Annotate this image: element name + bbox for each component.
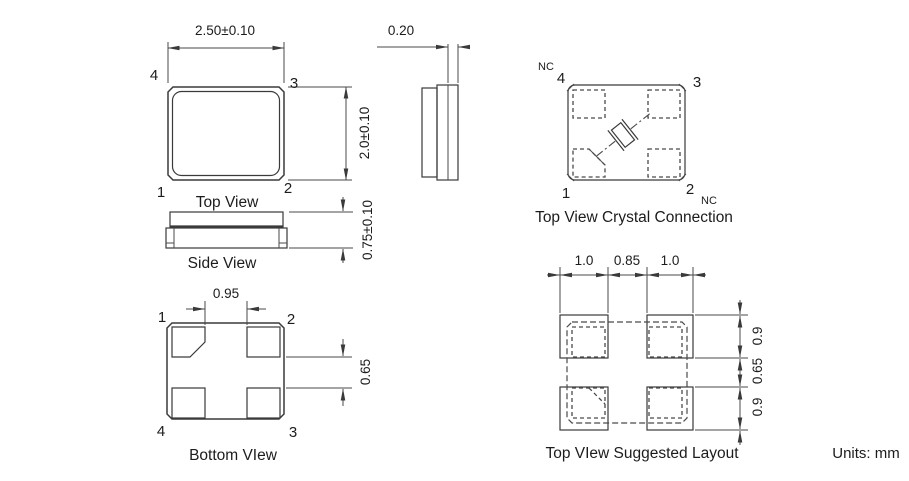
end-view-pad-thickness-dimension: 0.20 xyxy=(377,23,470,83)
connection-pad-4 xyxy=(573,90,605,118)
bottom-view-gap-x-dim-label: 0.95 xyxy=(213,286,239,301)
bottom-view-package-outline xyxy=(167,323,284,419)
end-view-pad-thickness-dim-label: 0.20 xyxy=(388,23,414,38)
bottom-view-pin1-label: 1 xyxy=(158,309,166,326)
layout-dim-pad-width-left-label: 1.0 xyxy=(575,253,594,268)
units-label: Units: mm xyxy=(832,445,900,462)
layout-dim-pad-gap-x-label: 0.85 xyxy=(614,253,640,268)
top-view-width-dim-label: 2.50±0.10 xyxy=(195,23,255,38)
layout-dim-pad-height-bottom-label: 0.9 xyxy=(750,398,765,417)
crystal-connection-group: NC 4 3 1 2 NC Top View Crystal Connectio… xyxy=(535,61,733,226)
bottom-view-pin2-label: 2 xyxy=(287,311,295,328)
bottom-view-caption: Bottom VIew xyxy=(189,447,278,464)
end-view-group: 0.20 xyxy=(377,23,470,180)
end-view-lid xyxy=(422,88,437,177)
side-view-lid xyxy=(170,212,283,227)
top-view-group: 2.50±0.10 2.0±0.10 4 3 1 2 Top View xyxy=(150,23,372,211)
connection-pin3-label: 3 xyxy=(693,74,701,91)
side-view-caption: Side View xyxy=(188,255,257,272)
top-view-height-dimension: 2.0±0.10 xyxy=(288,87,372,180)
bottom-view-gap-y-dimension: 0.65 xyxy=(286,339,373,406)
side-view-base xyxy=(166,228,287,248)
crystal-connection-caption: Top View Crystal Connection xyxy=(535,209,733,226)
connection-corner-marks xyxy=(567,84,686,181)
layout-pad-outline-br xyxy=(649,388,682,418)
crystal-symbol xyxy=(588,104,657,167)
layout-dim-pad-height-top-label: 0.9 xyxy=(750,327,765,346)
top-view-pin2-label: 2 xyxy=(284,180,292,197)
layout-pin1-chamfer xyxy=(589,388,605,404)
top-view-caption: Top View xyxy=(196,194,259,211)
package-dimension-drawing: 2.50±0.10 2.0±0.10 4 3 1 2 Top View 0.75… xyxy=(0,0,909,481)
top-view-package-outline xyxy=(168,87,284,180)
top-view-width-dimension: 2.50±0.10 xyxy=(168,23,284,83)
layout-pad-outline-bl xyxy=(572,388,605,418)
bottom-view-gap-y-dim-label: 0.65 xyxy=(358,359,373,385)
connection-pin1-label: 1 xyxy=(562,185,570,202)
connection-pad-2 xyxy=(648,149,680,177)
bottom-view-pad-2 xyxy=(247,327,280,357)
connection-package-outline xyxy=(568,85,685,180)
layout-pad-outline-tl xyxy=(572,327,605,357)
layout-dim-pad-width-right-label: 1.0 xyxy=(661,253,680,268)
connection-pin4-label: 4 xyxy=(557,70,565,87)
connection-nc-top-label: NC xyxy=(538,61,554,73)
suggested-layout-caption: Top VIew Suggested Layout xyxy=(545,445,739,462)
side-view-height-dimension: 0.75±0.10 xyxy=(289,197,375,263)
layout-package-outline-dashed xyxy=(567,322,687,423)
top-view-pin3-label: 3 xyxy=(290,75,298,92)
top-view-lid-outline xyxy=(173,92,280,176)
top-view-pin1-label: 1 xyxy=(157,184,165,201)
connection-pin2-label: 2 xyxy=(686,181,694,198)
top-view-pin4-label: 4 xyxy=(150,67,158,84)
datasheet-drawing-sheet: 2.50±0.10 2.0±0.10 4 3 1 2 Top View 0.75… xyxy=(0,0,909,481)
layout-right-dimension-chain: 0.9 0.65 0.9 xyxy=(695,300,765,445)
connection-nc-bottom-label: NC xyxy=(701,195,717,207)
bottom-view-pad-4 xyxy=(172,388,205,418)
top-view-height-dim-label: 2.0±0.10 xyxy=(357,107,372,159)
bottom-view-pin4-label: 4 xyxy=(157,423,165,440)
bottom-view-group: 0.95 0.65 1 2 4 3 Bottom VIew xyxy=(157,286,373,464)
bottom-view-pin3-label: 3 xyxy=(289,424,297,441)
layout-dim-pad-gap-y-label: 0.65 xyxy=(750,358,765,384)
layout-top-dimension-chain: 1.0 0.85 1.0 xyxy=(547,253,706,313)
suggested-layout-group: 1.0 0.85 1.0 0.9 0.65 0.9 Top VIew Sugge… xyxy=(545,253,765,462)
bottom-view-pad-3 xyxy=(247,388,280,418)
bottom-view-pad-1 xyxy=(172,327,205,357)
layout-pad-outline-tr xyxy=(649,327,682,357)
bottom-view-gap-x-dimension: 0.95 xyxy=(186,286,266,325)
connection-pad-3 xyxy=(648,90,680,118)
side-view-height-dim-label: 0.75±0.10 xyxy=(360,200,375,260)
